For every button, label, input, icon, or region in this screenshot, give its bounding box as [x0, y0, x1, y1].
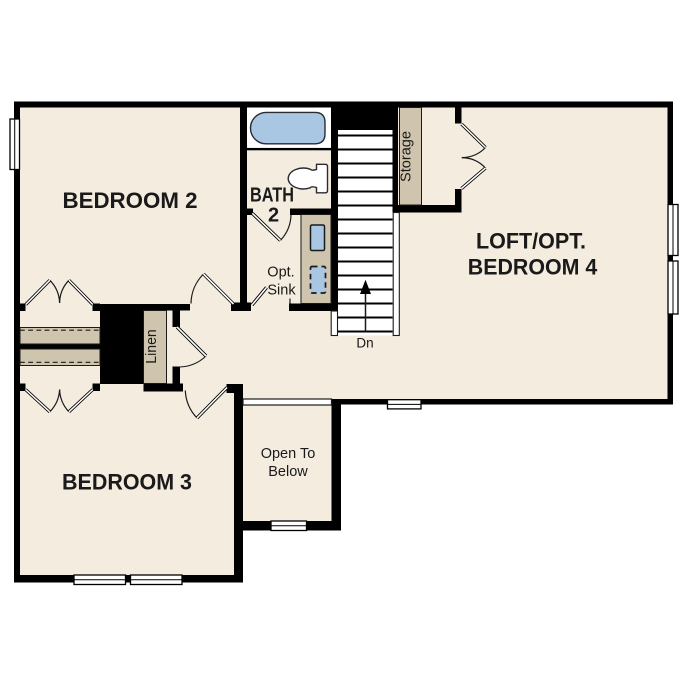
svg-text:Storage: Storage — [397, 131, 414, 182]
svg-text:Dn: Dn — [356, 335, 373, 350]
svg-text:BEDROOM 4: BEDROOM 4 — [468, 255, 598, 280]
svg-text:BEDROOM 2: BEDROOM 2 — [63, 188, 198, 213]
svg-text:Sink: Sink — [267, 283, 296, 299]
svg-text:2: 2 — [268, 205, 279, 227]
svg-text:Opt.: Opt. — [267, 264, 294, 280]
svg-text:Linen: Linen — [143, 329, 160, 364]
svg-text:Open To: Open To — [261, 446, 316, 462]
svg-text:BEDROOM 3: BEDROOM 3 — [62, 470, 192, 495]
svg-text:LOFT/OPT.: LOFT/OPT. — [476, 229, 586, 254]
svg-text:Below: Below — [268, 464, 308, 480]
svg-text:BATH: BATH — [250, 185, 294, 207]
